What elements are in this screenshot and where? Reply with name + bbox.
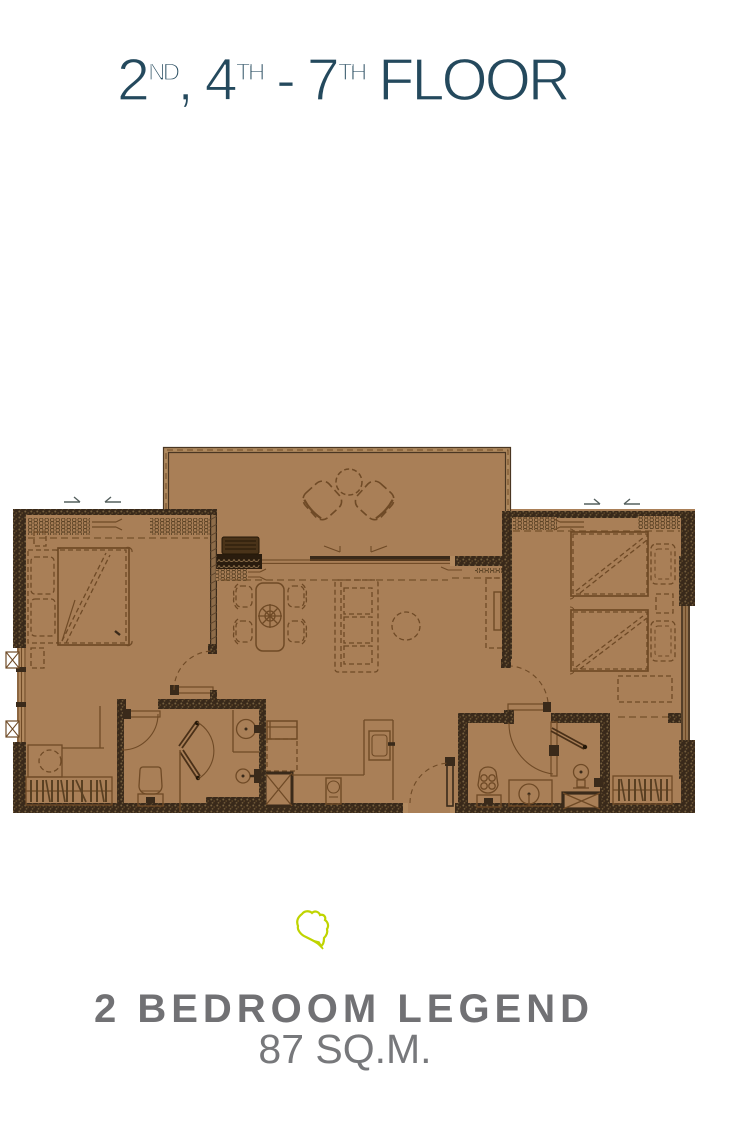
- svg-text:87 SQ.M.: 87 SQ.M.: [258, 1026, 431, 1072]
- svg-text:2 BEDROOM LEGEND: 2 BEDROOM LEGEND: [94, 987, 594, 1031]
